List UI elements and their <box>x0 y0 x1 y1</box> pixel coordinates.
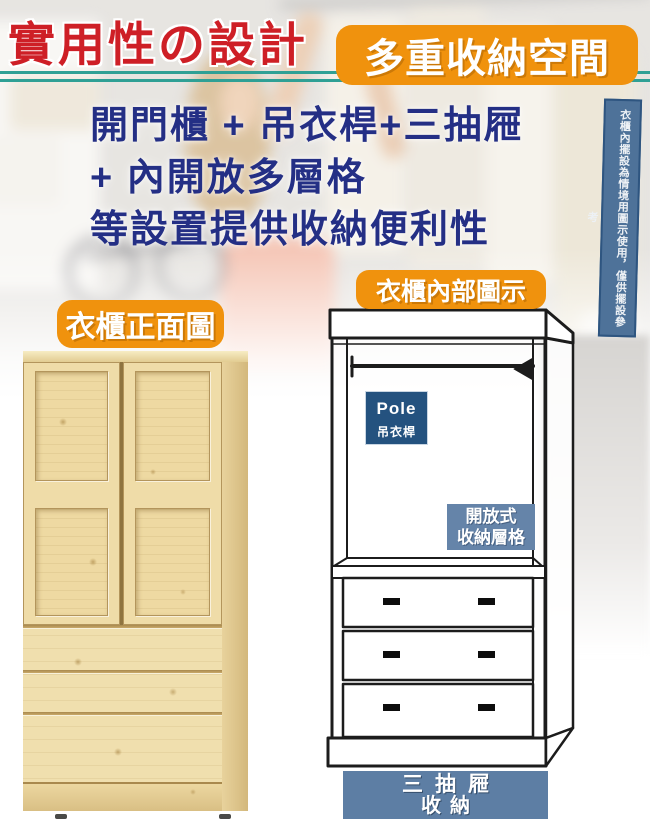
three-drawers-label: 三抽屜 收納 <box>343 771 548 819</box>
diagram-plinth <box>328 738 546 766</box>
open-shelf-label-line1: 開放式 <box>466 506 517 527</box>
pole-label: Pole 吊衣桿 <box>365 391 428 445</box>
wardrobe-foot <box>55 814 67 819</box>
open-shelf-label: 開放式 收納層格 <box>447 504 535 550</box>
open-shelf-label-line2: 收納層格 <box>457 527 525 548</box>
wardrobe-side-panel <box>221 362 248 811</box>
feature-headline: 開門櫃 + 吊衣桿+三抽屜 + 內開放多層格 等設置提供收納便利性 <box>90 100 524 256</box>
drawer-handle <box>383 704 400 711</box>
drawer-handle <box>478 651 495 658</box>
promo-page: 實用性の設計 多重收納空間 開門櫃 + 吊衣桿+三抽屜 + 內開放多層格 等設置… <box>0 0 650 823</box>
three-drawers-label-line2: 收納 <box>412 796 479 817</box>
pole-label-en: Pole <box>366 399 427 419</box>
disclaimer-strip: 衣櫃內擺設為情境用圖示使用，僅供擺設參考 <box>598 99 642 338</box>
drawer-handle <box>478 704 495 711</box>
drawer-2 <box>343 631 533 680</box>
drawer-3 <box>343 684 533 737</box>
drawer-1 <box>343 578 533 627</box>
diagram-top-cap-side <box>546 310 573 343</box>
shelf-front-band <box>332 566 545 578</box>
wardrobe-front-photo <box>23 351 248 819</box>
drawer-handle <box>383 598 400 605</box>
pole-label-zh: 吊衣桿 <box>366 423 427 440</box>
wardrobe-foot <box>219 814 231 819</box>
interior-view-badge: 衣櫃內部圖示 <box>356 270 546 309</box>
front-view-badge: 衣櫃正面圖 <box>57 300 224 348</box>
diagram-side-face <box>546 338 573 738</box>
drawer-handle <box>383 651 400 658</box>
page-title: 實用性の設計 <box>8 6 308 75</box>
feature-headline-line3: 等設置提供收納便利性 <box>90 204 524 256</box>
drawer-handle <box>478 598 495 605</box>
three-drawers-label-line1: 三抽屜 <box>390 774 501 796</box>
storage-space-badge: 多重收納空間 <box>336 25 638 85</box>
feature-headline-line1: 開門櫃 + 吊衣桿+三抽屜 <box>90 100 524 152</box>
feature-headline-line2: + 內開放多層格 <box>90 152 524 204</box>
diagram-top-cap <box>330 310 546 338</box>
wood-knots-texture <box>23 362 222 811</box>
